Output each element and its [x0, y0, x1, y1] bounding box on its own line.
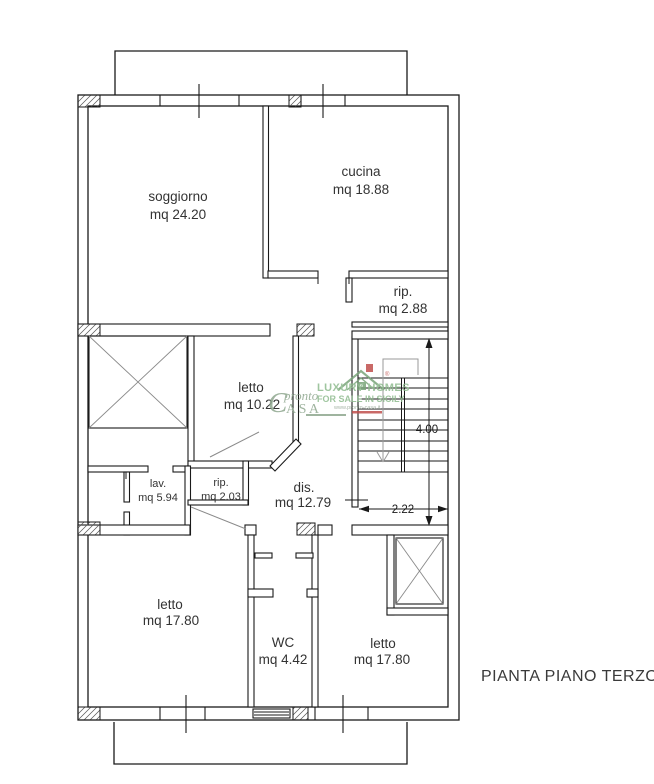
- room-dis-name: dis.: [293, 480, 314, 495]
- room-letto3-name: letto: [370, 636, 396, 651]
- room-soggiorno-area: mq 24.20: [150, 207, 206, 222]
- watermark-registered: ®: [385, 371, 390, 378]
- room-soggiorno-name: soggiorno: [148, 189, 207, 204]
- watermark: C pronto ASA ® LUXURY HOMES FOR SALE IN …: [268, 364, 410, 419]
- room-lav-name: lav.: [150, 478, 166, 490]
- staircase: [358, 359, 448, 472]
- watermark-tagline2: FOR SALE IN SICILY: [317, 394, 405, 404]
- dimension-4-00: 4.00: [416, 424, 438, 436]
- balcony-top: [115, 51, 407, 95]
- floor-plan-page: 4.00 2.22 soggiorno mq 24.20 cucina mq 1…: [0, 0, 654, 784]
- balcony-bottom: [114, 722, 407, 764]
- shaft-lower: [396, 538, 443, 604]
- room-lav-area: mq 5.94: [138, 492, 178, 504]
- room-cucina-area: mq 18.88: [333, 182, 389, 197]
- room-rip2-name: rip.: [213, 477, 228, 489]
- stair-direction-guide: [377, 359, 418, 462]
- room-wc-area: mq 4.42: [259, 652, 308, 667]
- room-rip2-area: mq 2.03: [201, 491, 241, 503]
- room-rip1-area: mq 2.88: [379, 301, 428, 316]
- watermark-tagline1: LUXURY HOMES: [317, 382, 410, 394]
- room-wc-name: WC: [272, 635, 295, 650]
- watermark-url: www.pronto-casa.it: [333, 405, 381, 411]
- dimension-2-22: 2.22: [392, 504, 414, 516]
- room-letto1-name: letto: [238, 380, 264, 395]
- shaft-upper: [89, 336, 187, 428]
- room-dis-area: mq 12.79: [275, 495, 331, 510]
- watermark-green-rule: [306, 414, 346, 416]
- watermark-red-rule: [352, 411, 382, 414]
- door-jambs: [126, 278, 349, 479]
- floor-plan-drawing: 4.00 2.22 soggiorno mq 24.20 cucina mq 1…: [0, 0, 654, 784]
- room-cucina-name: cucina: [341, 164, 381, 179]
- room-letto2-name: letto: [157, 597, 183, 612]
- room-rip1-name: rip.: [394, 284, 413, 299]
- room-letto3-area: mq 17.80: [354, 652, 410, 667]
- plan-title: PIANTA PIANO TERZO: [481, 668, 654, 685]
- watermark-brand-top: pronto: [283, 388, 319, 403]
- room-letto2-area: mq 17.80: [143, 613, 199, 628]
